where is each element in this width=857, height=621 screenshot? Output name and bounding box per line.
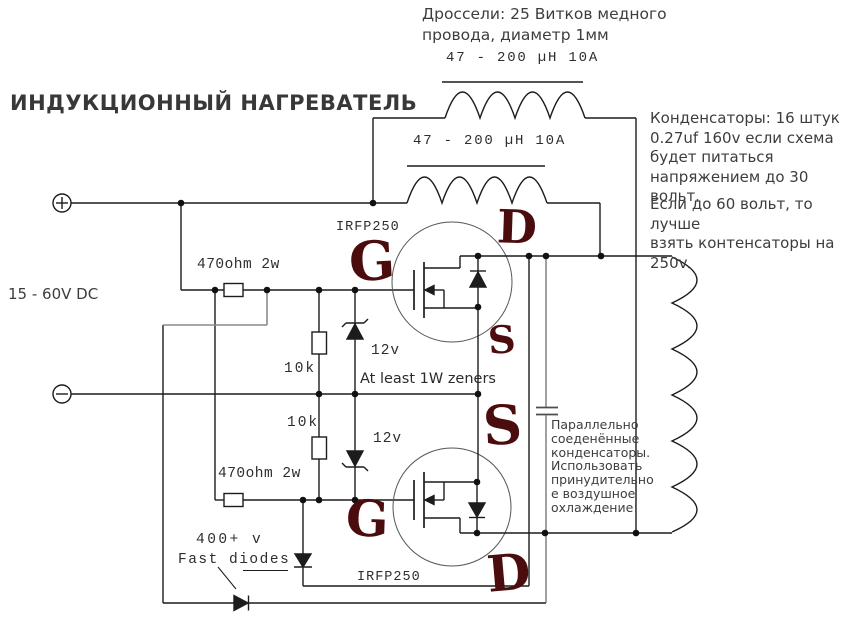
zener-bottom-icon [342,394,368,500]
choke1-coil-icon [445,92,585,118]
q2-drain-pin-label: D [485,546,533,600]
resistor-470-bottom-value: 470ohm 2w [218,465,301,483]
parallel-caps-note: Параллельно соеденённые конденсаторы. Ис… [551,418,651,515]
resistor-470-top-icon [224,284,243,297]
work-coil-icon [672,257,697,532]
capacitors-note-2: Если до 60 вольт, то лучше взять контенс… [650,195,857,273]
q1-gate-pin-label: G [348,233,397,289]
resistor-10k-bottom-value: 10k [287,414,319,432]
supply-voltage-label: 15 - 60V DC [8,285,98,304]
capacitors-note-1: Конденсаторы: 16 штук 0.27uf 160v если с… [650,109,857,207]
choke2-coil-icon [407,177,547,203]
fast-diodes-label: Fast diodes [178,551,290,569]
mosfet-bottom-label: IRFP250 [357,570,421,587]
resistor-470-bottom-icon [224,494,243,507]
body-diode-top-icon [470,272,486,287]
resistor-10k-top-icon [312,332,327,354]
schematic-canvas: ИНДУКЦИОННЫЙ НАГРЕВАТЕЛЬ Дроссели: 25 Ви… [0,0,857,621]
choke1-value: 47 - 200 µH 10A [446,50,599,68]
q2-gate-pin-label: G [345,493,389,544]
resistor-10k-top-value: 10k [284,360,316,378]
fast-diodes-voltage: 400+ v [196,531,263,549]
positive-terminal-icon [53,194,71,212]
body-diode-bottom-icon [469,503,485,517]
chokes-note: Дроссели: 25 Витков медного провода, диа… [422,4,667,46]
zener-top-value: 12v [371,342,400,360]
zeners-note: At least 1W zeners [360,370,496,388]
q2-source-pin-label: S [482,397,524,453]
q1-source-pin-label: S [487,320,517,360]
page-title: ИНДУКЦИОННЫЙ НАГРЕВАТЕЛЬ [10,90,417,116]
fast-diode-2-icon [234,596,249,611]
choke2-value: 47 - 200 µH 10A [413,133,566,151]
resistor-10k-bottom-icon [312,437,327,459]
zener-bottom-value: 12v [373,430,402,448]
resistor-470-top-value: 470ohm 2w [197,256,280,274]
negative-terminal-icon [53,385,71,403]
fast-diode-1-icon [294,500,312,586]
q1-drain-pin-label: D [496,203,537,250]
fast-diodes-pointer-line [218,567,236,589]
